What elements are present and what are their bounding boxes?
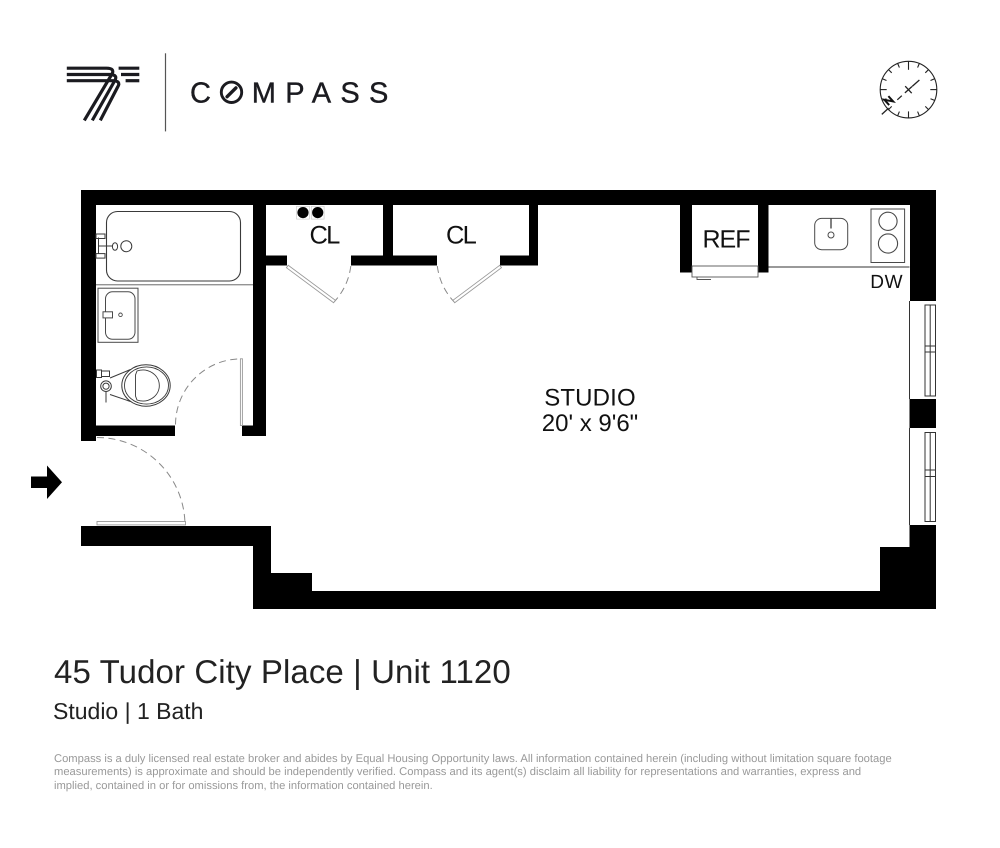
svg-text:REF: REF [703, 226, 751, 254]
svg-text:CL: CL [310, 222, 341, 250]
svg-text:CL: CL [446, 222, 477, 250]
svg-text:DW: DW [870, 272, 903, 293]
svg-text:C: C [190, 78, 220, 110]
svg-text:STUDIO: STUDIO [544, 385, 636, 412]
svg-text:20' x 9'6": 20' x 9'6" [542, 410, 638, 437]
svg-text:MPASS: MPASS [252, 78, 398, 110]
